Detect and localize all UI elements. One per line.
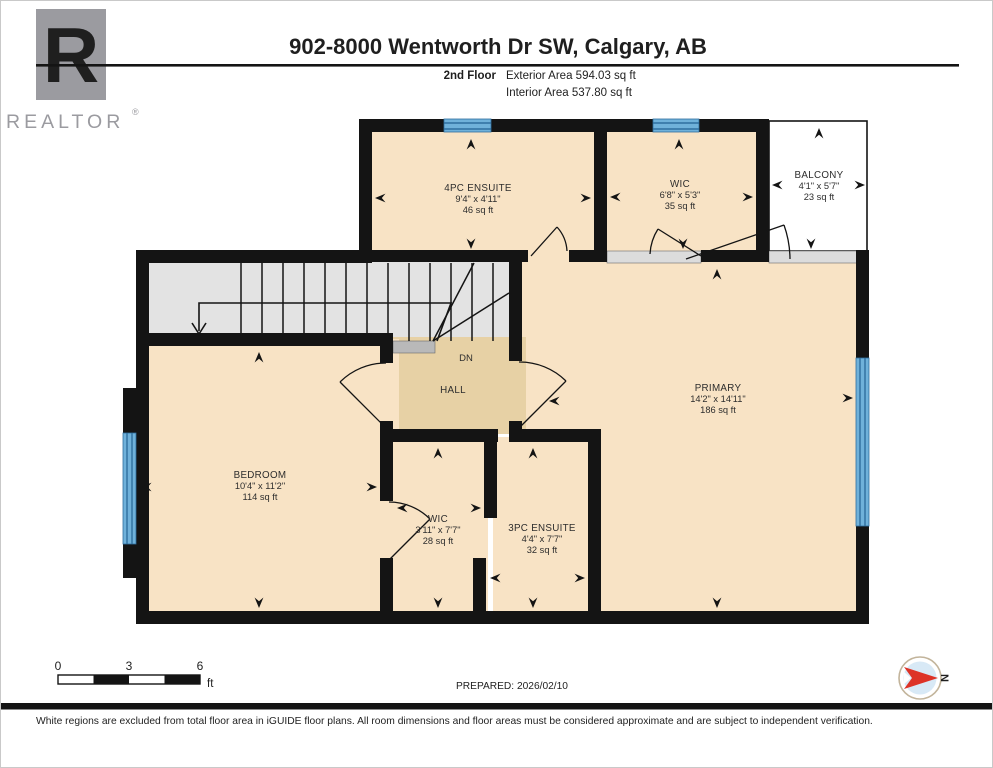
scale-unit: ft bbox=[207, 678, 214, 690]
room-area-bedroom: 114 sq ft bbox=[243, 492, 278, 502]
disclaimer-text: White regions are excluded from total fl… bbox=[36, 716, 873, 727]
room-name-wic-bottom: WIC bbox=[428, 514, 448, 525]
room-name-hall: HALL bbox=[440, 385, 466, 396]
scale-bar: 0 3 6 ft bbox=[55, 659, 215, 690]
room-name-4pc-ensuite: 4PC ENSUITE bbox=[444, 183, 512, 194]
floor-label: 2nd Floor bbox=[444, 70, 497, 82]
room-name-balcony: BALCONY bbox=[795, 170, 844, 181]
window-icon-primary bbox=[856, 358, 869, 526]
room-dims-wic-bottom: 3'11" x 7'7" bbox=[415, 525, 460, 535]
window-icon-ensuite bbox=[444, 119, 491, 132]
room-dims-balcony: 4'1" x 5'7" bbox=[799, 181, 840, 191]
room-dims-3pc-ensuite: 4'4" x 7'7" bbox=[522, 534, 563, 544]
exterior-area: Exterior Area 594.03 sq ft bbox=[506, 70, 637, 82]
scale-tick-6: 6 bbox=[197, 659, 204, 673]
footer-divider-bar bbox=[1, 703, 993, 710]
footer: 0 3 6 ft PREPARED: 2026/02/10 N White re… bbox=[1, 657, 993, 727]
room-dims-wic-top: 6'8" x 5'3" bbox=[660, 190, 701, 200]
realtor-logo-label: REALTOR bbox=[6, 111, 124, 133]
interior-area: Interior Area 537.80 sq ft bbox=[506, 87, 633, 99]
room-area-balcony: 23 sq ft bbox=[804, 192, 835, 202]
page-title: 902-8000 Wentworth Dr SW, Calgary, AB bbox=[289, 34, 707, 59]
floor-plan-page: R REALTOR ® 902-8000 Wentworth Dr SW, Ca… bbox=[0, 0, 993, 768]
room-area-wic-bottom: 28 sq ft bbox=[423, 536, 454, 546]
room-area-3pc-ensuite: 32 sq ft bbox=[527, 545, 558, 555]
sill-wic bbox=[607, 251, 701, 263]
window-icon-bedroom bbox=[123, 433, 136, 544]
room-area-primary: 186 sq ft bbox=[700, 405, 736, 415]
room-name-wic-top: WIC bbox=[670, 179, 690, 190]
prepared-date: PREPARED: 2026/02/10 bbox=[456, 681, 568, 692]
room-dims-4pc-ensuite: 9'4" x 4'11" bbox=[455, 194, 500, 204]
floor-plan: 4PC ENSUITE 9'4" x 4'11" 46 sq ft WIC 6'… bbox=[123, 119, 869, 624]
stairs-region bbox=[145, 259, 513, 343]
room-dims-bedroom: 10'4" x 11'2" bbox=[235, 481, 285, 491]
room-area-4pc-ensuite: 46 sq ft bbox=[463, 205, 494, 215]
scale-tick-3: 3 bbox=[126, 659, 133, 673]
room-area-wic-top: 35 sq ft bbox=[665, 201, 696, 211]
header-rule bbox=[36, 64, 959, 67]
compass-north-label: N bbox=[938, 674, 950, 682]
stair-landing-step bbox=[393, 341, 435, 353]
compass-icon: N bbox=[899, 657, 950, 699]
room-name-primary: PRIMARY bbox=[695, 383, 742, 394]
room-name-3pc-ensuite: 3PC ENSUITE bbox=[508, 523, 576, 534]
sill-balcony bbox=[769, 251, 867, 263]
realtor-registered-mark: ® bbox=[132, 107, 139, 117]
room-dims-primary: 14'2" x 14'11" bbox=[690, 394, 745, 404]
stairs-dn-label: DN bbox=[459, 353, 473, 364]
window-icon-wic bbox=[653, 119, 699, 132]
scale-tick-0: 0 bbox=[55, 659, 62, 673]
header: R REALTOR ® 902-8000 Wentworth Dr SW, Ca… bbox=[6, 9, 959, 133]
floor-plan-canvas: R REALTOR ® 902-8000 Wentworth Dr SW, Ca… bbox=[1, 1, 993, 768]
room-name-bedroom: BEDROOM bbox=[234, 470, 287, 481]
realtor-logo-letter: R bbox=[43, 11, 99, 99]
